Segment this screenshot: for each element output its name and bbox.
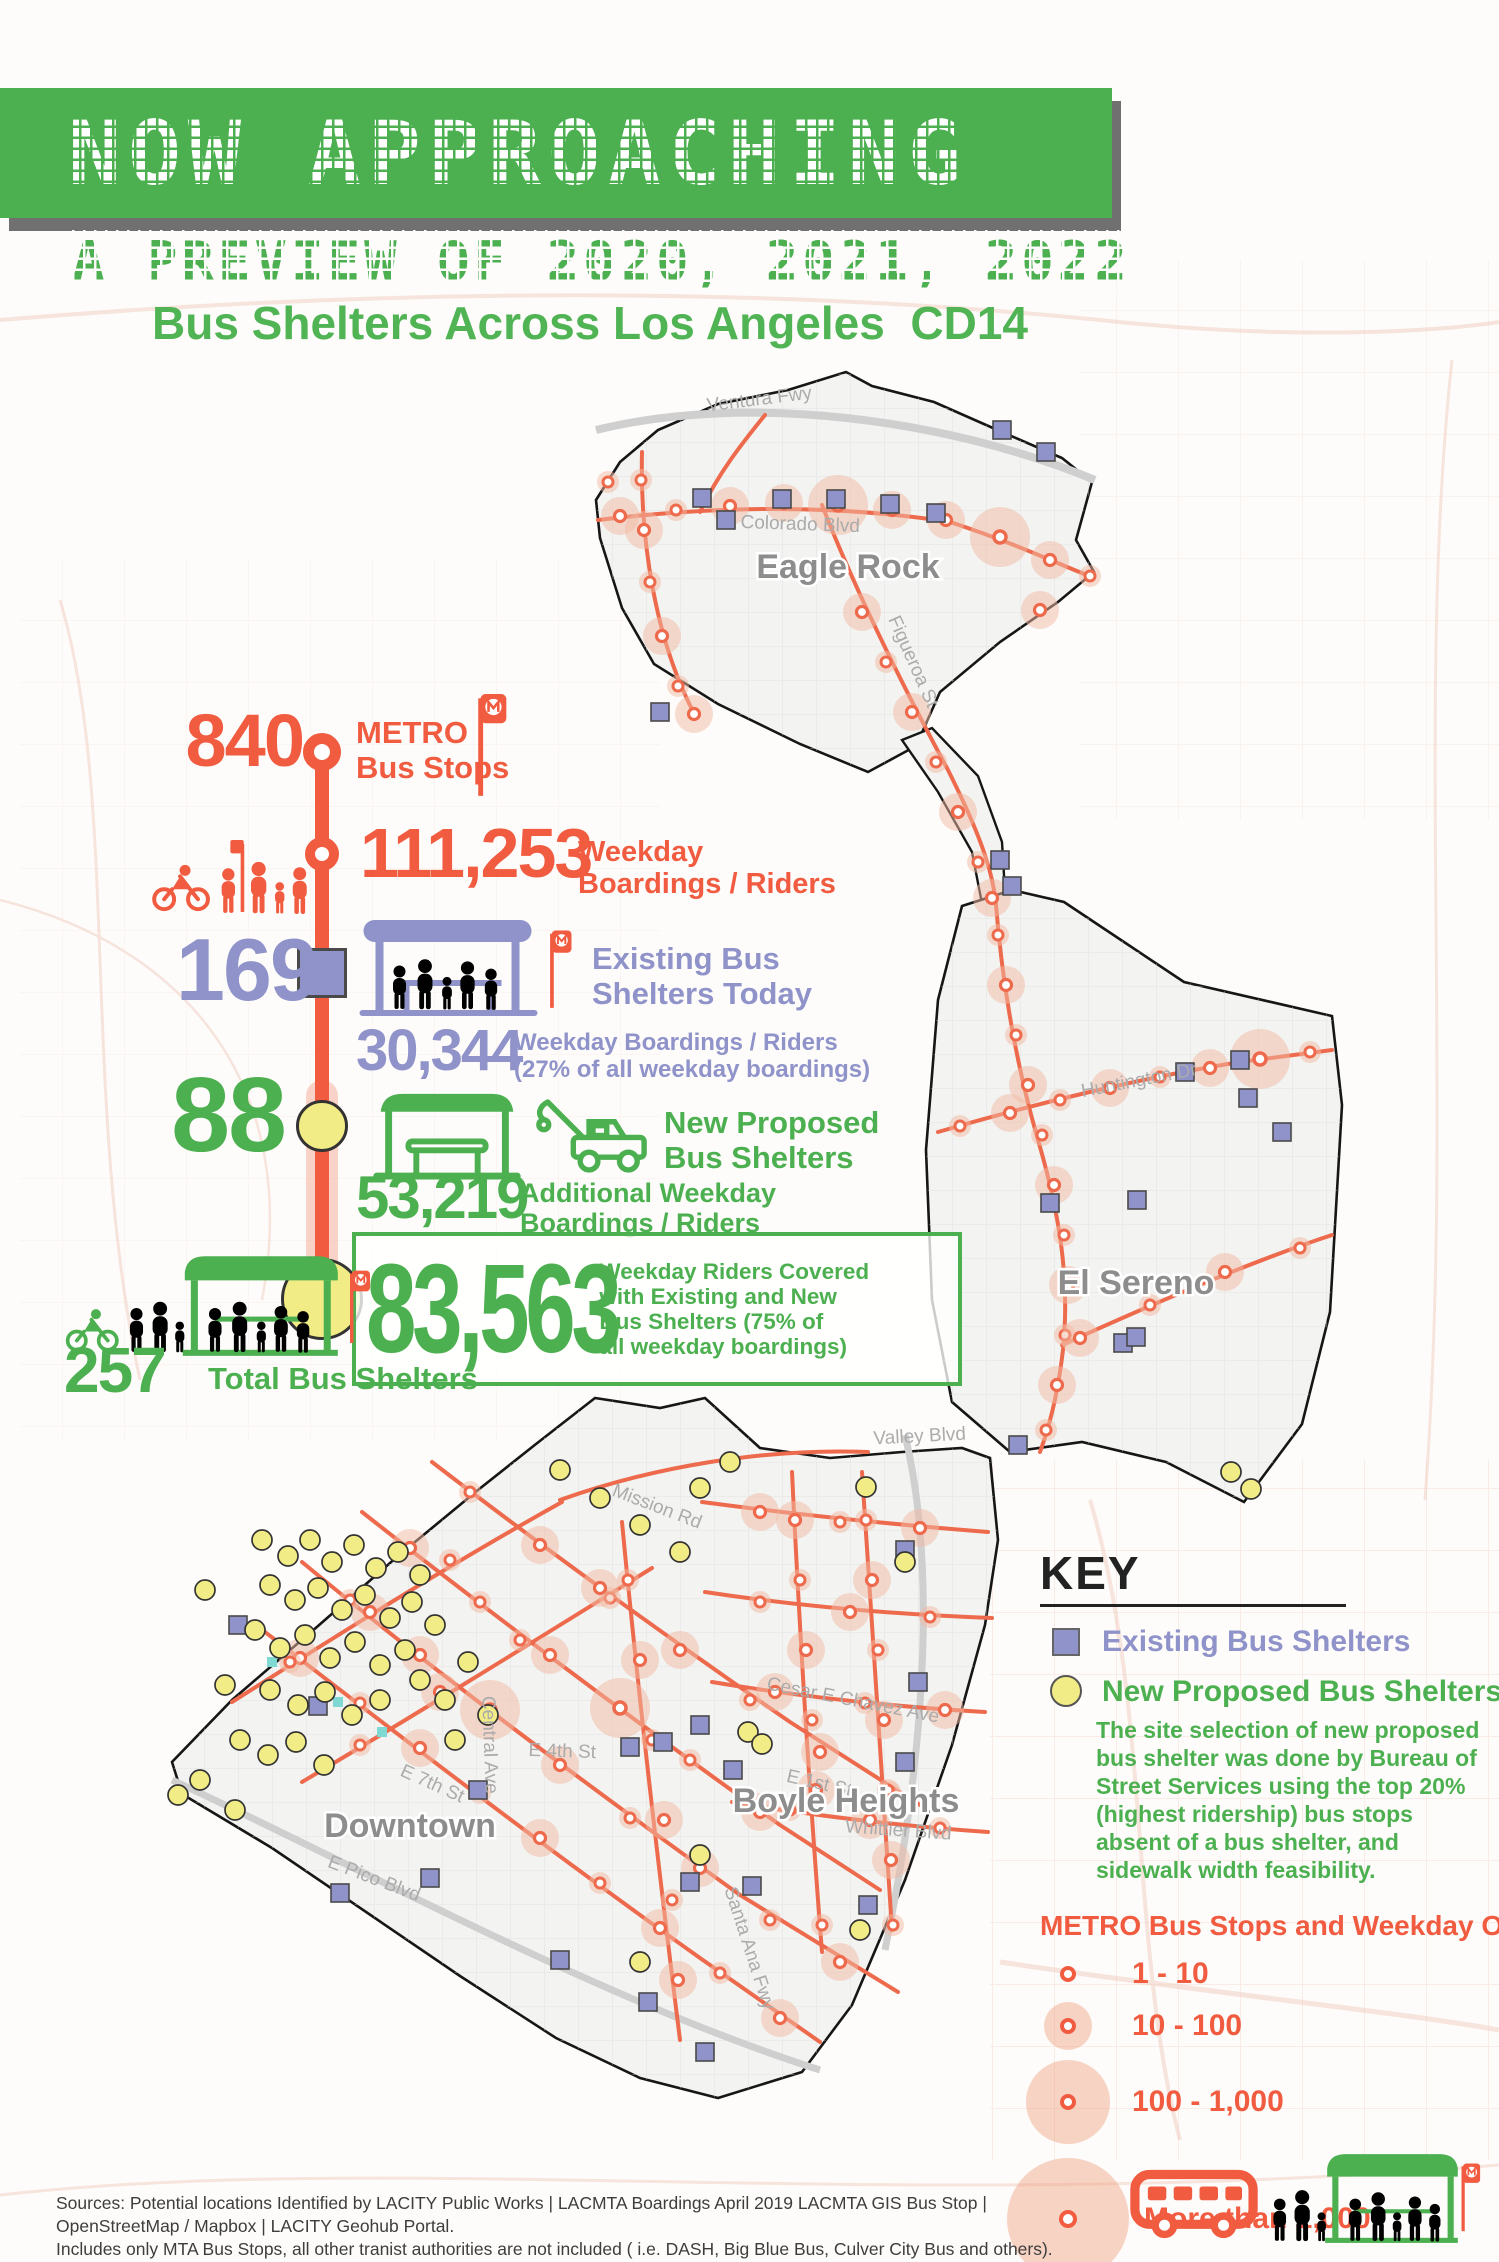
header-banner: NOW APPROACHING xyxy=(0,88,1112,218)
stat-existing-subvalue: 30,344 xyxy=(356,1022,521,1080)
stat-proposed-label: New Proposed Bus Shelters xyxy=(664,1106,879,1175)
metro-flag-icon xyxy=(468,694,508,798)
sources-footer: Sources: Potential locations Identified … xyxy=(56,2192,1056,2262)
stat-existing-sublabel: Weekday Boardings / Riders (27% of all w… xyxy=(514,1030,870,1084)
size-label-2: 10 - 100 xyxy=(1132,2009,1242,2043)
street-label: Valley Blvd xyxy=(873,1424,967,1450)
stats-timeline xyxy=(315,750,329,1304)
stat-existing-value: 169 xyxy=(176,926,304,1014)
proposed-shelter-swatch xyxy=(1050,1675,1082,1707)
stat-proposed-subvalue: 53,219 xyxy=(356,1168,528,1228)
stat-covered-label: Weekday Riders Covered with Existing and… xyxy=(599,1259,869,1360)
size-label-1: 1 - 10 xyxy=(1132,1957,1209,1991)
existing-shelter-icon xyxy=(356,918,574,1018)
bus-shelter-icon xyxy=(1268,2150,1468,2244)
tow-truck-icon xyxy=(532,1094,650,1178)
stat-total-value: 257 xyxy=(64,1338,165,1402)
neighborhood-label: Downtown xyxy=(324,1807,496,1845)
stat-existing-label: Existing Bus Shelters Today xyxy=(592,942,812,1011)
size-icon-1 xyxy=(1040,1966,1096,1982)
key-note: The site selection of new proposed bus s… xyxy=(1096,1716,1482,1884)
size-icon-3 xyxy=(1040,2060,1096,2144)
neighborhood-label: Eagle Rock xyxy=(756,548,939,586)
source-line-2: Includes only MTA Bus Stops, all other t… xyxy=(56,2238,1056,2261)
riders-icon xyxy=(150,840,320,914)
stat-proposed-value: 88 xyxy=(150,1062,285,1168)
neighborhood-label: El Sereno xyxy=(1058,1264,1215,1302)
size-icon-2 xyxy=(1040,2002,1096,2050)
street-label: Colorado Blvd xyxy=(740,512,860,537)
existing-shelter-swatch xyxy=(1052,1628,1080,1656)
stat-boardings-value: 111,253 xyxy=(360,818,591,888)
street-label: E 4th St xyxy=(528,1740,597,1763)
stat-metro-stops-value: 840 xyxy=(168,704,303,778)
neighborhood-label: Boyle Heights xyxy=(733,1782,960,1820)
source-line-1: Sources: Potential locations Identified … xyxy=(56,2192,1056,2238)
banner-title: NOW APPROACHING xyxy=(68,102,968,205)
key-underline xyxy=(1040,1604,1346,1607)
key-existing-label: Existing Bus Shelters xyxy=(1102,1625,1410,1659)
stat-total-label: Total Bus Shelters xyxy=(208,1362,478,1397)
subtitle: A PREVIEW OF 2020, 2021, 2022 xyxy=(72,230,1131,293)
key-title: KEY xyxy=(1040,1546,1492,1600)
size-label-3: 100 - 1,000 xyxy=(1132,2085,1284,2119)
stat-covered-value: 83,563 xyxy=(366,1246,618,1372)
bus-icon xyxy=(1128,2168,1260,2240)
stat-proposed-sublabel: Additional Weekday Boardings / Riders xyxy=(520,1178,776,1238)
timeline-node-bus-stops xyxy=(303,733,341,771)
key-boardings-title: METRO Bus Stops and Weekday ON Boardings xyxy=(1040,1910,1492,1942)
key-proposed-label: New Proposed Bus Shelters xyxy=(1102,1675,1499,1709)
street-label: Central Ave xyxy=(477,1696,501,1795)
infographic-poster: Ventura Fwy Colorado Blvd Figueroa St Hu… xyxy=(0,0,1499,2262)
page-title: Bus Shelters Across Los Angeles CD14 xyxy=(152,296,1028,350)
timeline-node-proposed xyxy=(296,1100,348,1152)
stat-boardings-label: Weekday Boardings / Riders xyxy=(578,836,836,901)
